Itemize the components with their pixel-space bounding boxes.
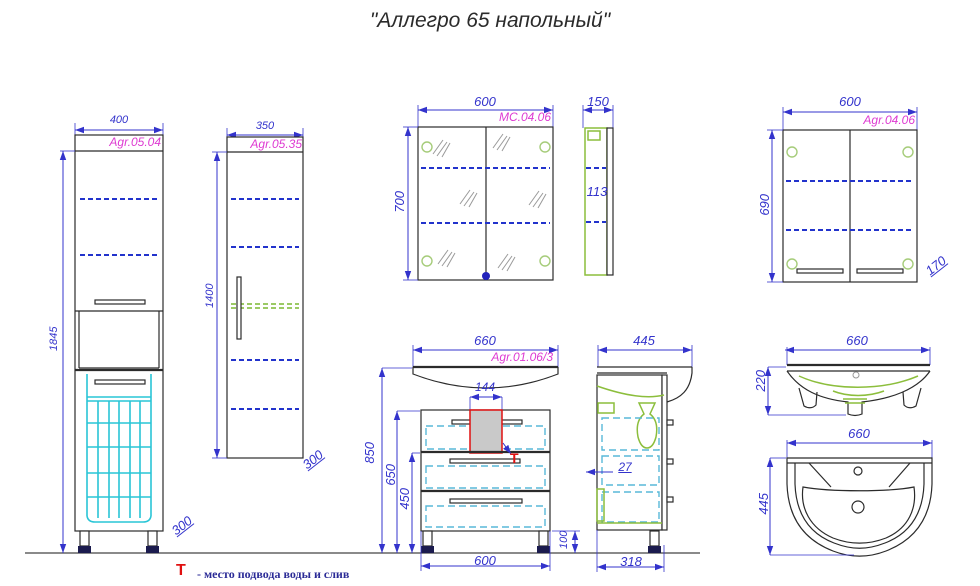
vanity-side-gap-dim: 27 — [612, 461, 638, 474]
mirror-side-inner-dim: 113 — [577, 185, 617, 199]
page-title: "Аллегро 65 напольный" — [300, 10, 680, 32]
vanity-drawer-height-dim: 450 — [398, 479, 412, 519]
mirror-cabinet-article: МС.04.06 — [477, 111, 551, 124]
tall-cabinet-article: Agr.05.04 — [85, 136, 161, 149]
vanity-article: Agr.01.06/3 — [475, 351, 553, 364]
mid-cabinet-width-dim: 350 — [245, 121, 285, 133]
sink-top-depth-dim: 445 — [757, 484, 771, 524]
tall-cabinet-height-dim: 1845 — [49, 319, 61, 359]
mid-cabinet-article: Agr.05.35 — [232, 138, 302, 151]
vanity-side-drawing — [586, 345, 692, 572]
vanity-cutout-dim: 144 — [465, 381, 505, 394]
vanity-side-body-dim: 318 — [611, 555, 651, 569]
legend-symbol: Т — [176, 563, 186, 580]
technical-drawing-sheet: "Аллегро 65 напольный" 400 Agr.05.04 184… — [0, 0, 980, 586]
mirror-side-depth-dim: 150 — [578, 95, 618, 109]
vanity-leg-height-dim: 100 — [559, 520, 571, 560]
mirror-cabinet-width-dim: 600 — [465, 95, 505, 109]
sink-front-width-dim: 660 — [837, 334, 877, 348]
overflow-hole — [853, 372, 859, 378]
vanity-mid-height-dim: 650 — [384, 455, 398, 495]
sink-front-drawing — [768, 347, 930, 416]
water-supply-marker: Т — [510, 451, 519, 466]
drawing-canvas — [0, 0, 980, 586]
wall-cabinet-width-dim: 600 — [830, 95, 870, 109]
vanity-side-width-dim: 445 — [624, 334, 664, 348]
sink-front-height-dim: 220 — [754, 361, 768, 401]
sink-top-drawing — [770, 440, 932, 556]
mirror-cabinet-front-drawing — [403, 105, 553, 280]
water-supply-zone — [470, 410, 502, 453]
legend-text: - место подвода воды и слив — [197, 568, 349, 581]
tall-cabinet-drawing — [60, 123, 163, 553]
mirror-cabinet-height-dim: 700 — [393, 182, 407, 222]
vanity-width-dim: 660 — [465, 334, 505, 348]
tall-cabinet-width-dim: 400 — [99, 115, 139, 127]
vanity-body-width-dim: 600 — [465, 554, 505, 568]
vanity-front-drawing — [382, 345, 580, 571]
wall-cabinet-article: Agr.04.06 — [843, 114, 915, 127]
drain-hole — [852, 501, 864, 513]
vanity-total-height-dim: 850 — [363, 433, 377, 473]
mid-cabinet-drawing — [212, 128, 303, 458]
wall-cabinet-drawing — [767, 107, 917, 282]
sink-top-width-dim: 660 — [839, 427, 879, 441]
door-knob — [482, 272, 490, 280]
wall-cabinet-height-dim: 690 — [758, 185, 772, 225]
mid-cabinet-height-dim: 1400 — [205, 276, 217, 316]
faucet-hole — [854, 467, 862, 475]
